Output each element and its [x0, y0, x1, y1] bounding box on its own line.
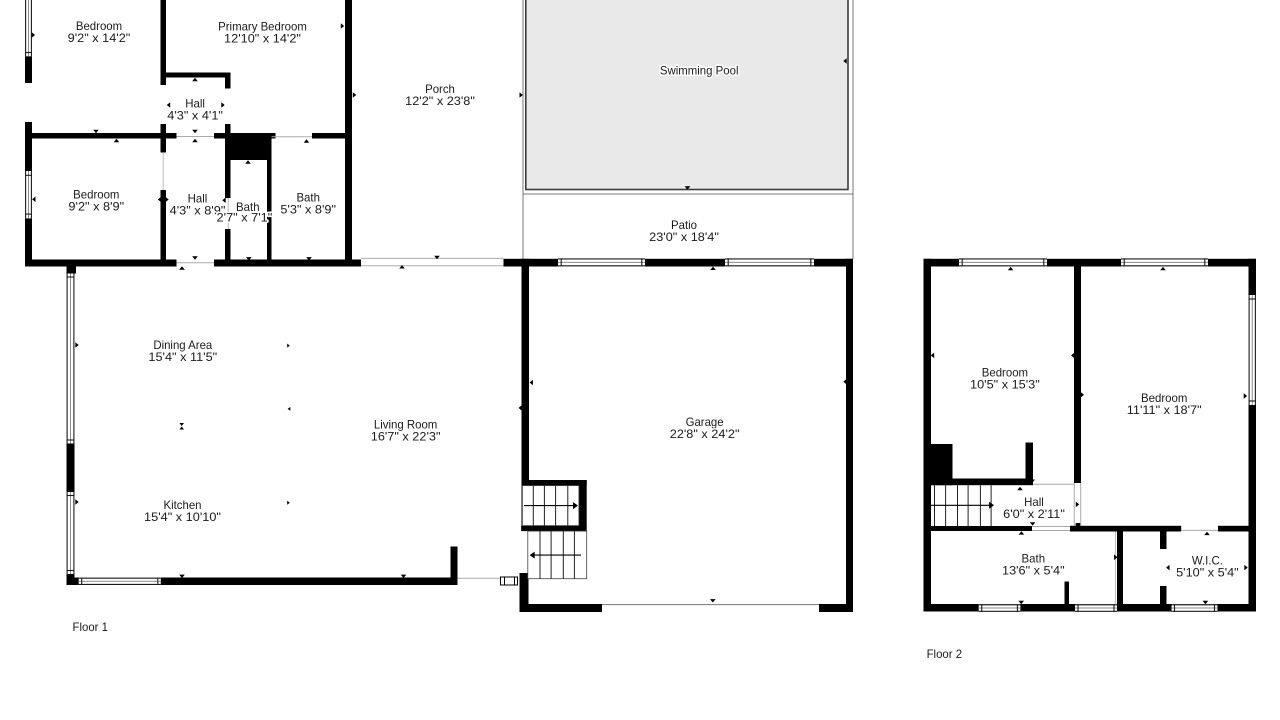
- svg-text:12'2" x 23'8": 12'2" x 23'8": [405, 94, 475, 108]
- svg-text:23'0" x 18'4": 23'0" x 18'4": [649, 230, 719, 244]
- svg-text:4'3" x 4'1": 4'3" x 4'1": [167, 109, 223, 123]
- svg-text:9'2" x 14'2": 9'2" x 14'2": [68, 31, 131, 45]
- svg-text:15'4" x 11'5": 15'4" x 11'5": [148, 350, 217, 364]
- svg-text:2'7" x 7'1": 2'7" x 7'1": [217, 210, 273, 224]
- svg-text:9'2" x 8'9": 9'2" x 8'9": [68, 200, 124, 214]
- svg-text:22'8" x 24'2": 22'8" x 24'2": [670, 427, 740, 441]
- svg-text:12'10" x 14'2": 12'10" x 14'2": [224, 32, 301, 46]
- svg-text:13'6" x 5'4": 13'6" x 5'4": [1002, 564, 1065, 578]
- svg-text:5'3" x 8'9": 5'3" x 8'9": [280, 202, 336, 216]
- svg-text:Floor 2: Floor 2: [927, 647, 963, 661]
- svg-text:16'7" x 22'3": 16'7" x 22'3": [371, 430, 441, 444]
- svg-text:11'11" x 18'7": 11'11" x 18'7": [1127, 403, 1202, 417]
- svg-text:15'4" x 10'10": 15'4" x 10'10": [144, 510, 221, 524]
- svg-text:Swimming Pool: Swimming Pool: [660, 64, 739, 78]
- svg-text:Floor 1: Floor 1: [73, 620, 109, 634]
- svg-text:5'10" x 5'4": 5'10" x 5'4": [1176, 566, 1239, 580]
- svg-text:10'5" x 15'3": 10'5" x 15'3": [970, 378, 1040, 392]
- svg-text:6'0" x 2'11": 6'0" x 2'11": [1003, 507, 1065, 521]
